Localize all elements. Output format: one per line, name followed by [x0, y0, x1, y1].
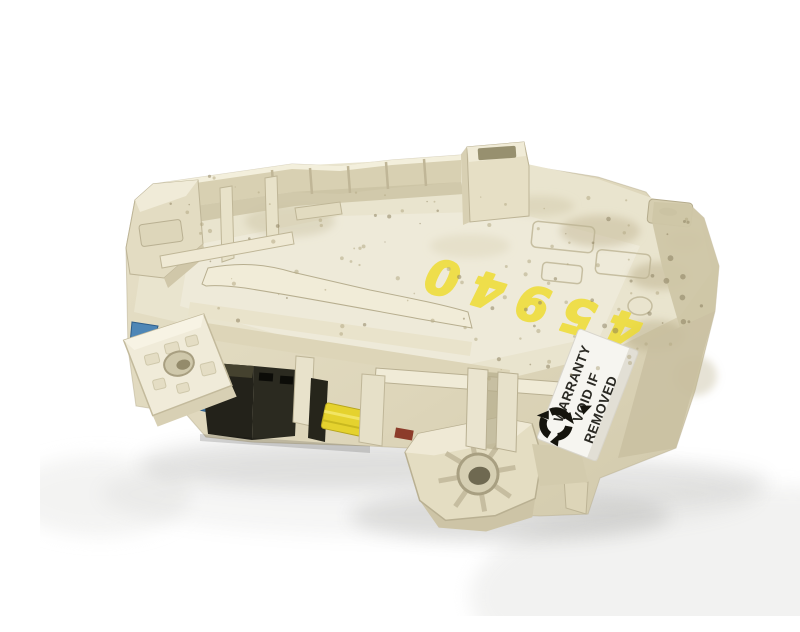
connector-slot [259, 373, 274, 382]
connector-tower [461, 142, 529, 225]
fuse-box-photo: 45940 WARRANTY VOID IF REMOVED Used beig… [40, 16, 800, 616]
fuse-box-illustration: 45940 WARRANTY VOID IF REMOVED [40, 16, 800, 616]
divider-strap [359, 374, 385, 446]
connector-slot [280, 376, 294, 385]
